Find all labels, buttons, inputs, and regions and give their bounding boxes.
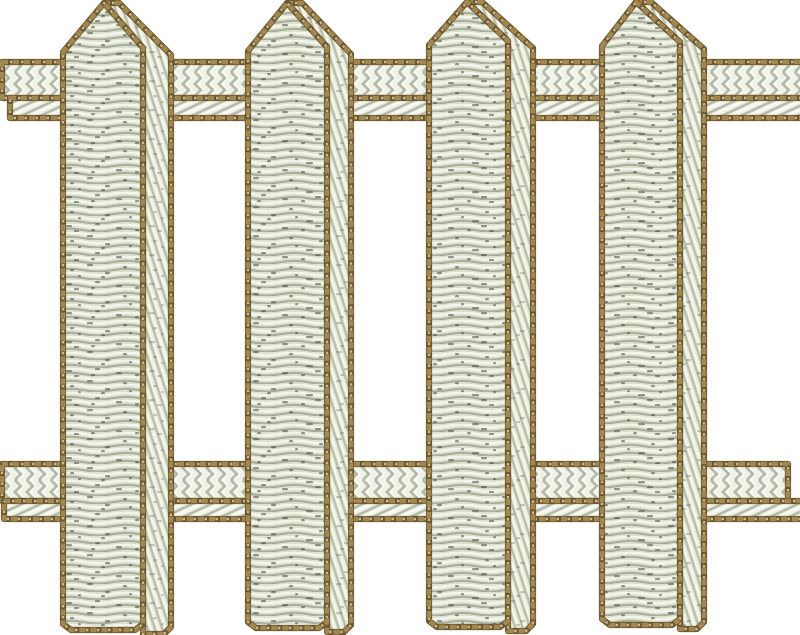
picket-fence-graphic xyxy=(0,0,800,635)
picket-2 xyxy=(248,3,351,632)
embroidery-design-canvas: White picket fence machine embroidery de… xyxy=(0,0,800,635)
picket-4-front-face xyxy=(602,2,680,625)
picket-3-front-face xyxy=(429,2,508,627)
picket-1 xyxy=(63,3,171,634)
picket-2-front-face xyxy=(248,3,327,628)
picket-3 xyxy=(429,2,533,631)
picket-1-front-face xyxy=(63,3,143,630)
picket-4 xyxy=(602,2,704,629)
